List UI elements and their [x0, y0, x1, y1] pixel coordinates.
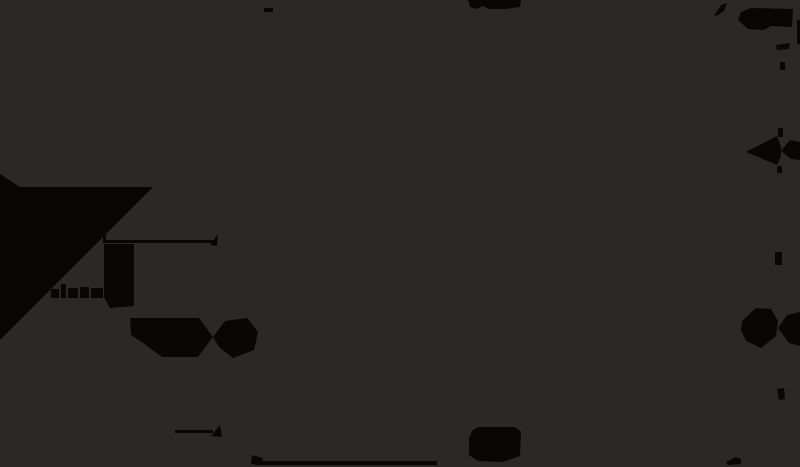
- left-label-mark-2: [61, 284, 66, 298]
- bottom-right-leader-arrow: [726, 457, 741, 465]
- top-edge-dash: [264, 8, 273, 12]
- right-dim-arrow-tail: [781, 140, 800, 160]
- left-label-blob: [104, 244, 134, 308]
- top-center-number-blob: [468, 0, 521, 9]
- bottom-center-number-blob: [469, 427, 521, 462]
- right-extension-tick-5: [777, 388, 785, 400]
- top-right-leader-arrow: [714, 3, 727, 16]
- right-dim-arrowhead-left: [746, 136, 781, 165]
- right-extension-tick-4: [775, 252, 782, 265]
- right-extension-tick-1: [780, 62, 785, 70]
- left-label-mark-1: [51, 289, 59, 298]
- left-label-mark-3: [68, 288, 78, 298]
- right-bowtie-arrow-right: [778, 312, 800, 346]
- lower-bowtie-arrow-left: [130, 318, 213, 357]
- mid-dim-extension-tick: [103, 233, 106, 243]
- bottom-dim-line: [175, 430, 213, 433]
- left-label-mark-4: [80, 287, 89, 298]
- bottom-edge-line: [255, 461, 437, 465]
- technical-drawing-canvas: [0, 0, 800, 467]
- right-bowtie-arrow-left: [741, 308, 778, 348]
- drawing-viewport: [0, 0, 800, 467]
- top-right-dash: [776, 43, 790, 50]
- right-extension-tick-2: [778, 128, 783, 137]
- mid-dim-line: [104, 240, 214, 243]
- right-extension-tick-3: [777, 166, 782, 173]
- lower-bowtie-arrow-right: [213, 318, 258, 358]
- top-right-label-blob: [738, 8, 793, 30]
- left-label-mark-5: [91, 288, 103, 298]
